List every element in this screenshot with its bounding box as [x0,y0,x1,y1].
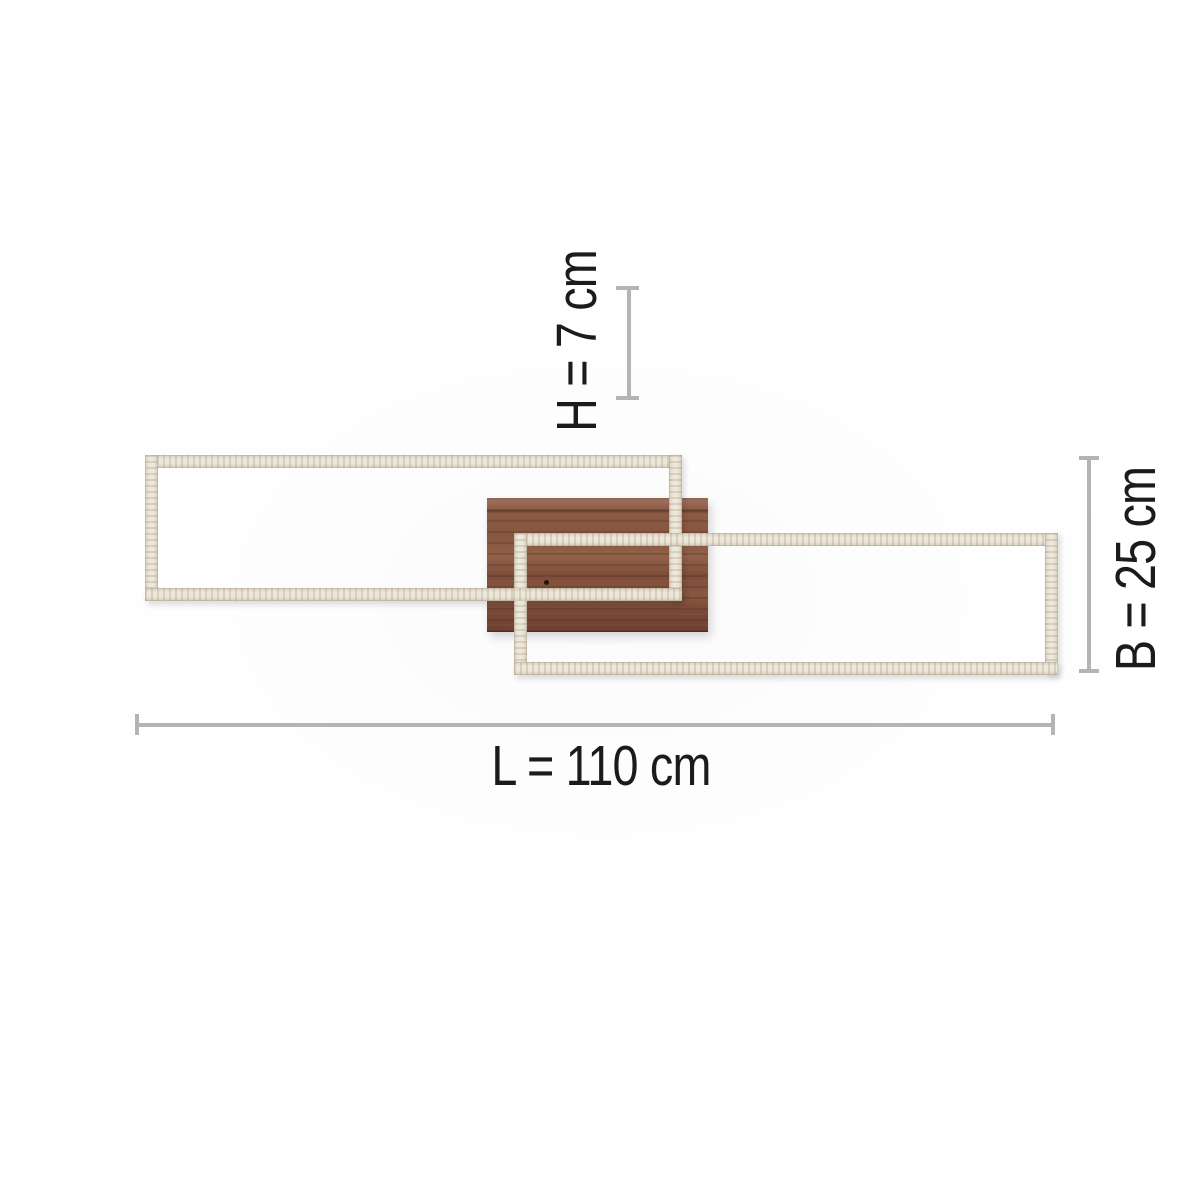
height-dimension-label: H = 7 cm [547,218,607,464]
right-frame-right-bar [1045,533,1058,675]
left-frame-left-bar [145,455,158,601]
width-dimension-label: B = 25 cm [1106,446,1166,692]
frame-weave-patch [513,588,528,601]
height-dimension-line [627,286,631,400]
right-light-frame [514,533,1058,675]
width-dimension-cap-top [1079,456,1099,460]
right-frame-top-bar [514,533,1058,546]
length-dimension-cap-right [1051,714,1055,735]
length-dimension-cap-left [135,714,139,735]
product-dimension-diagram: H = 7 cm B = 25 cm L = 110 cm [0,0,1200,1200]
height-dimension-cap-top [616,286,639,290]
length-dimension-label: L = 110 cm [437,736,765,796]
length-dimension-line [135,723,1055,727]
width-dimension-cap-bottom [1079,669,1099,673]
right-frame-left-bar [514,533,527,675]
right-frame-bottom-bar [514,662,1058,675]
width-dimension-line [1087,456,1091,673]
height-dimension-cap-bottom [616,396,639,400]
